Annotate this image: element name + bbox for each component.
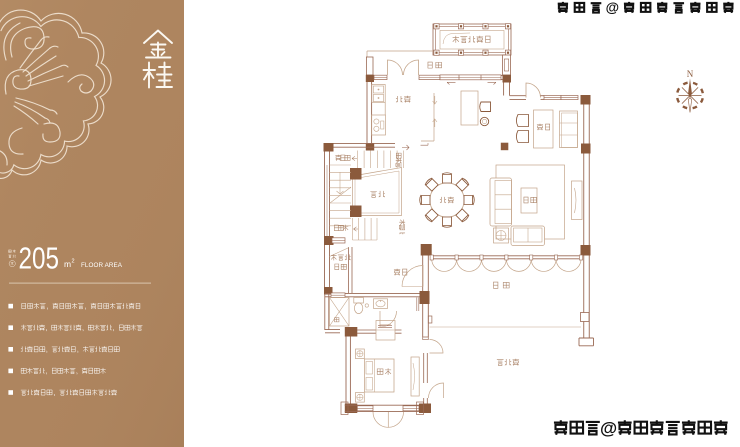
svg-text:205: 205 (19, 242, 60, 276)
svg-text:m: m (64, 259, 71, 269)
svg-text:@: @ (600, 418, 617, 438)
svg-text:2: 2 (72, 259, 75, 265)
svg-text:@: @ (606, 0, 619, 15)
svg-text:N: N (687, 69, 694, 79)
svg-text:FLOOR AREA: FLOOR AREA (81, 262, 123, 269)
